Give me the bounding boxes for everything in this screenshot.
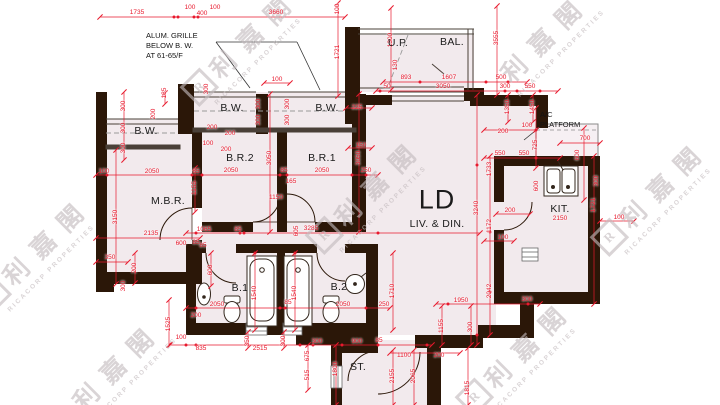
floorplan-page: R利嘉閣RICACORP PROPERTIES利嘉閣RICACORP PROPE… (0, 0, 720, 405)
floorplan-drawing (0, 0, 720, 405)
